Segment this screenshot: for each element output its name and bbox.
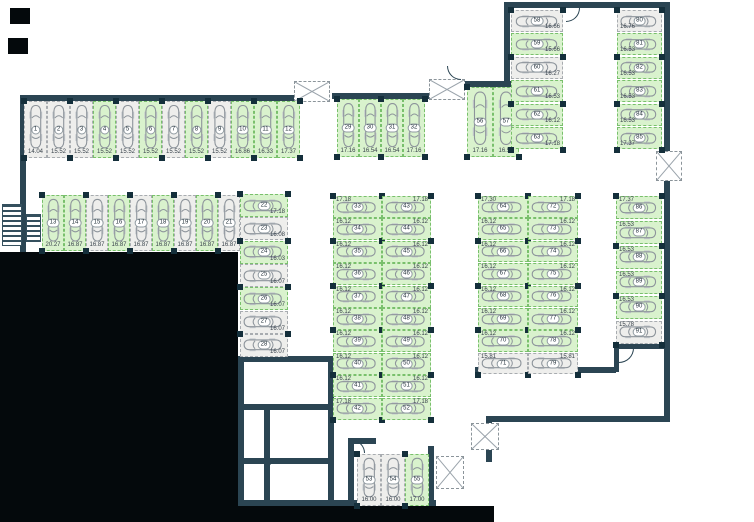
structural-column xyxy=(205,155,211,161)
space-number: 17 xyxy=(135,219,148,228)
space-area-label: 16.87 xyxy=(89,242,104,249)
space-number: 15 xyxy=(91,219,104,228)
parking-space-46[interactable]: 4616.12 xyxy=(382,263,431,285)
space-area-label: 17.18 xyxy=(336,399,351,406)
structural-column xyxy=(464,154,470,160)
space-area-label: 16.12 xyxy=(413,331,428,338)
parking-space-67[interactable]: 6716.12 xyxy=(478,263,528,285)
parking-space-29[interactable]: 2917.16 xyxy=(337,99,359,157)
space-number: 53 xyxy=(363,476,376,485)
parking-space-47[interactable]: 4716.12 xyxy=(382,286,431,308)
structural-column xyxy=(659,193,665,199)
structural-column xyxy=(508,7,514,13)
structural-column xyxy=(508,54,514,60)
space-area-label: 16.87 xyxy=(111,242,126,249)
space-number: 41 xyxy=(351,382,364,391)
structural-column xyxy=(378,154,384,160)
parking-space-17[interactable]: 1716.87 xyxy=(130,195,152,251)
structural-column xyxy=(330,417,336,423)
parking-space-3[interactable]: 315.52 xyxy=(70,101,93,158)
structural-column xyxy=(285,238,291,244)
space-number: 42 xyxy=(351,404,364,413)
space-number: 47 xyxy=(400,292,413,301)
parking-space-13[interactable]: 1320.27 xyxy=(42,195,64,251)
structural-column xyxy=(205,98,211,104)
parking-space-68[interactable]: 6816.12 xyxy=(478,286,528,308)
space-number: 60 xyxy=(531,63,544,72)
structural-column xyxy=(659,243,665,249)
structural-column xyxy=(428,327,434,333)
structural-column xyxy=(560,54,566,60)
parking-space-88[interactable]: 8816.53 xyxy=(616,246,662,269)
space-area-label: 16.54 xyxy=(362,148,377,155)
space-area-label: 15.52 xyxy=(51,149,66,156)
space-number: 49 xyxy=(400,337,413,346)
space-number: 90 xyxy=(633,303,646,312)
structural-column xyxy=(21,155,27,161)
space-number: 22 xyxy=(258,201,271,210)
space-number: 40 xyxy=(351,359,364,368)
structural-column xyxy=(237,238,243,244)
space-area-label: 16.03 xyxy=(270,256,285,263)
space-number: 54 xyxy=(387,476,400,485)
structural-column xyxy=(659,293,665,299)
structural-column xyxy=(475,372,481,378)
parking-space-35[interactable]: 3516.12 xyxy=(333,241,382,263)
parking-space-10[interactable]: 1016.86 xyxy=(231,101,254,158)
parking-space-12[interactable]: 1217.37 xyxy=(277,101,300,158)
space-area-label: 16.00 xyxy=(385,497,400,504)
parking-space-78[interactable]: 7816.12 xyxy=(528,330,578,352)
space-area-label: 17.18 xyxy=(270,209,285,216)
parking-space-20[interactable]: 2016.87 xyxy=(196,195,218,251)
space-area-label: 17.37 xyxy=(620,141,635,148)
space-area-label: 16.12 xyxy=(481,264,496,271)
space-number: 29 xyxy=(342,124,355,133)
space-area-label: 16.86 xyxy=(235,149,250,156)
parking-space-58[interactable]: 5816.66 xyxy=(511,10,563,32)
structural-column xyxy=(428,283,434,289)
structural-column xyxy=(659,54,665,60)
structural-column xyxy=(251,98,257,104)
space-area-label: 16.12 xyxy=(545,118,560,125)
parking-space-4[interactable]: 415.52 xyxy=(93,101,116,158)
space-number: 24 xyxy=(258,248,271,257)
parking-space-27[interactable]: 2716.07 xyxy=(240,311,288,334)
parking-space-82[interactable]: 8216.53 xyxy=(617,57,662,79)
structural-column xyxy=(113,98,119,104)
stairs-west xyxy=(2,204,22,246)
structural-column xyxy=(402,451,408,457)
parking-space-89[interactable]: 8916.53 xyxy=(616,271,662,294)
parking-space-76[interactable]: 7616.12 xyxy=(528,286,578,308)
parking-space-59[interactable]: 5915.66 xyxy=(511,33,563,55)
parking-space-34[interactable]: 3416.12 xyxy=(333,218,382,240)
space-number: 81 xyxy=(633,40,646,49)
space-area-label: 16.12 xyxy=(560,264,575,271)
parking-space-62[interactable]: 6216.12 xyxy=(511,104,563,126)
parking-space-44[interactable]: 4416.12 xyxy=(382,218,431,240)
space-number: 12 xyxy=(282,125,295,134)
space-area-label: 16.87 xyxy=(67,242,82,249)
space-area-label: 16.12 xyxy=(413,264,428,271)
space-number: 28 xyxy=(258,341,271,350)
space-number: 43 xyxy=(400,203,413,212)
space-number: 72 xyxy=(547,202,560,211)
space-number: 83 xyxy=(633,87,646,96)
space-number: 14 xyxy=(69,219,82,228)
space-area-label: 16.53 xyxy=(619,297,634,304)
space-area-label: 16.87 xyxy=(221,242,236,249)
parking-space-28[interactable]: 2816.07 xyxy=(240,334,288,357)
structural-column xyxy=(354,451,360,457)
structural-column xyxy=(330,372,336,378)
structural-column xyxy=(297,155,303,161)
parking-space-19[interactable]: 1916.87 xyxy=(174,195,196,251)
space-number: 38 xyxy=(351,315,364,324)
structural-column xyxy=(659,342,665,348)
parking-space-53[interactable]: 5316.00 xyxy=(357,454,381,506)
space-area-label: 16.00 xyxy=(361,497,376,504)
parking-space-2[interactable]: 215.52 xyxy=(47,101,70,158)
structural-column xyxy=(330,283,336,289)
structural-column xyxy=(215,248,221,254)
space-area-label: 16.07 xyxy=(270,302,285,309)
space-area-label: 16.12 xyxy=(481,219,496,226)
space-area-label: 16.53 xyxy=(620,71,635,78)
space-area-label: 17.00 xyxy=(409,497,424,504)
structural-column xyxy=(614,7,620,13)
door-arc-northeast-corridor xyxy=(566,8,580,22)
space-area-label: 16.12 xyxy=(413,242,428,249)
space-area-label: 16.12 xyxy=(336,309,351,316)
parking-space-43[interactable]: 4317.18 xyxy=(382,196,431,218)
parking-space-75[interactable]: 7516.12 xyxy=(528,263,578,285)
structural-column xyxy=(378,96,384,102)
space-number: 73 xyxy=(547,225,560,234)
space-number: 71 xyxy=(497,359,510,368)
space-area-label: 16.12 xyxy=(481,331,496,338)
structural-column xyxy=(614,54,620,60)
structural-column xyxy=(475,327,481,333)
parking-space-40[interactable]: 4016.12 xyxy=(333,353,382,375)
parking-space-26[interactable]: 2616.07 xyxy=(240,287,288,310)
space-number: 78 xyxy=(547,337,560,346)
structural-column xyxy=(575,372,581,378)
parking-space-30[interactable]: 3016.54 xyxy=(359,99,381,157)
structural-column xyxy=(475,283,481,289)
parking-space-85[interactable]: 8517.37 xyxy=(617,127,662,149)
parking-space-7[interactable]: 715.52 xyxy=(162,101,185,158)
space-area-label: 15.81 xyxy=(560,354,575,361)
parking-space-70[interactable]: 7016.12 xyxy=(478,330,528,352)
parking-space-71[interactable]: 7115.81 xyxy=(478,353,528,375)
parking-space-6[interactable]: 615.52 xyxy=(139,101,162,158)
space-area-label: 17.18 xyxy=(336,197,351,204)
parking-space-61[interactable]: 6116.53 xyxy=(511,80,563,102)
structural-column xyxy=(575,238,581,244)
parking-space-31[interactable]: 3116.54 xyxy=(381,99,403,157)
structural-column xyxy=(159,155,165,161)
structural-column xyxy=(297,98,303,104)
space-area-label: 16.87 xyxy=(155,242,170,249)
space-area-label: 16.53 xyxy=(620,47,635,54)
structural-column xyxy=(422,154,428,160)
parking-space-87[interactable]: 8716.53 xyxy=(616,221,662,244)
structural-column xyxy=(159,98,165,104)
structural-column xyxy=(428,372,434,378)
space-number: 68 xyxy=(497,292,510,301)
space-area-label: 16.12 xyxy=(336,331,351,338)
space-number: 31 xyxy=(386,124,399,133)
structural-column xyxy=(422,96,428,102)
parking-space-5[interactable]: 515.52 xyxy=(116,101,139,158)
space-number: 11 xyxy=(259,125,271,134)
structural-column xyxy=(428,193,434,199)
space-number: 75 xyxy=(547,269,560,278)
space-number: 63 xyxy=(531,134,544,143)
space-area-label: 15.52 xyxy=(74,149,89,156)
parking-space-42[interactable]: 4217.18 xyxy=(333,398,382,420)
parking-space-11[interactable]: 1116.33 xyxy=(254,101,277,158)
space-area-label: 16.12 xyxy=(413,376,428,383)
structural-column xyxy=(251,155,257,161)
space-area-label: 16.87 xyxy=(199,242,214,249)
parking-space-83[interactable]: 8316.53 xyxy=(617,80,662,102)
space-number: 74 xyxy=(547,247,560,256)
space-area-label: 16.12 xyxy=(336,354,351,361)
space-area-label: 16.12 xyxy=(481,287,496,294)
space-area-label: 16.12 xyxy=(560,331,575,338)
structural-column xyxy=(39,192,45,198)
structural-column xyxy=(614,147,620,153)
structural-column xyxy=(613,342,619,348)
space-area-label: 17.16 xyxy=(472,148,487,155)
structural-column xyxy=(39,248,45,254)
space-area-label: 16.12 xyxy=(560,309,575,316)
parking-space-74[interactable]: 7416.12 xyxy=(528,241,578,263)
structural-column xyxy=(508,147,514,153)
space-area-label: 17.30 xyxy=(481,197,496,204)
space-number: 16 xyxy=(113,219,126,228)
structural-column xyxy=(237,284,243,290)
space-number: 84 xyxy=(633,110,646,119)
space-area-label: 15.66 xyxy=(545,47,560,54)
parking-space-39[interactable]: 3916.12 xyxy=(333,330,382,352)
space-number: 52 xyxy=(400,404,413,413)
space-number: 64 xyxy=(497,202,510,211)
parking-space-77[interactable]: 7716.12 xyxy=(528,308,578,330)
parking-space-9[interactable]: 915.52 xyxy=(208,101,231,158)
structural-column xyxy=(215,192,221,198)
shaft-hatch-southeast xyxy=(471,423,499,450)
space-area-label: 16.12 xyxy=(336,287,351,294)
space-area-label: 17.18 xyxy=(545,141,560,148)
parking-space-41[interactable]: 4116.12 xyxy=(333,375,382,397)
structural-column xyxy=(334,154,340,160)
space-number: 35 xyxy=(351,247,364,256)
space-area-label: 16.12 xyxy=(413,354,428,361)
space-number: 13 xyxy=(47,219,60,228)
structural-column xyxy=(334,96,340,102)
parking-space-64[interactable]: 6417.30 xyxy=(478,196,528,218)
space-area-label: 16.12 xyxy=(481,309,496,316)
parking-space-72[interactable]: 7217.18 xyxy=(528,196,578,218)
space-area-label: 16.27 xyxy=(545,71,560,78)
space-number: 30 xyxy=(364,124,377,133)
space-area-label: 16.12 xyxy=(560,287,575,294)
shaft-hatch-south xyxy=(436,456,464,489)
space-number: 36 xyxy=(351,270,364,279)
exterior-block-a xyxy=(10,8,30,24)
parking-space-18[interactable]: 1816.87 xyxy=(152,195,174,251)
parking-space-79[interactable]: 7915.81 xyxy=(528,353,578,375)
structural-column xyxy=(171,248,177,254)
structural-column xyxy=(475,238,481,244)
space-number: 59 xyxy=(531,40,544,49)
structural-column xyxy=(613,193,619,199)
space-area-label: 16.33 xyxy=(258,149,273,156)
space-number: 80 xyxy=(633,17,646,26)
parking-space-36[interactable]: 3616.12 xyxy=(333,263,382,285)
structural-column xyxy=(237,191,243,197)
structural-column xyxy=(127,192,133,198)
space-area-label: 16.12 xyxy=(413,287,428,294)
structural-column xyxy=(613,243,619,249)
parking-space-32[interactable]: 3217.16 xyxy=(403,99,425,157)
space-number: 87 xyxy=(633,228,646,237)
parking-space-24[interactable]: 2416.03 xyxy=(240,241,288,264)
structural-column xyxy=(330,193,336,199)
parking-space-37[interactable]: 3716.12 xyxy=(333,286,382,308)
space-area-label: 17.37 xyxy=(281,149,296,156)
parking-space-56[interactable]: 5617.16 xyxy=(467,87,493,157)
parking-space-45[interactable]: 4516.12 xyxy=(382,241,431,263)
structural-column xyxy=(575,283,581,289)
space-area-label: 16.53 xyxy=(545,94,560,101)
space-number: 55 xyxy=(411,476,424,485)
parking-space-8[interactable]: 815.52 xyxy=(185,101,208,158)
parking-space-15[interactable]: 1516.87 xyxy=(86,195,108,251)
space-number: 32 xyxy=(408,124,421,133)
space-area-label: 17.37 xyxy=(619,197,634,204)
parking-space-14[interactable]: 1416.87 xyxy=(64,195,86,251)
space-area-label: 16.12 xyxy=(560,242,575,249)
space-area-label: 16.12 xyxy=(336,242,351,249)
parking-space-16[interactable]: 1616.87 xyxy=(108,195,130,251)
space-number: 89 xyxy=(633,278,646,287)
parking-space-52[interactable]: 5217.18 xyxy=(382,398,431,420)
space-area-label: 16.54 xyxy=(384,148,399,155)
space-area-label: 15.52 xyxy=(189,149,204,156)
space-number: 79 xyxy=(547,359,560,368)
space-area-label: 15.52 xyxy=(166,149,181,156)
structural-column xyxy=(614,101,620,107)
space-number: 50 xyxy=(400,359,413,368)
parking-space-33[interactable]: 3317.18 xyxy=(333,196,382,218)
structural-column xyxy=(67,98,73,104)
space-area-label: 16.07 xyxy=(270,279,285,286)
parking-space-25[interactable]: 2516.07 xyxy=(240,264,288,287)
structural-column xyxy=(560,101,566,107)
space-area-label: 16.12 xyxy=(336,264,351,271)
space-number: 69 xyxy=(497,314,510,323)
parking-space-49[interactable]: 4916.12 xyxy=(382,330,431,352)
parking-space-69[interactable]: 6916.12 xyxy=(478,308,528,330)
space-number: 77 xyxy=(547,314,560,323)
space-number: 44 xyxy=(400,225,413,234)
parking-space-63[interactable]: 6317.18 xyxy=(511,127,563,149)
space-number: 25 xyxy=(258,271,271,280)
space-area-label: 16.76 xyxy=(620,24,635,31)
space-area-label: 16.07 xyxy=(270,349,285,356)
structural-column xyxy=(113,155,119,161)
parking-space-51[interactable]: 5116.12 xyxy=(382,375,431,397)
wall-room-left xyxy=(238,356,244,506)
structural-column xyxy=(659,101,665,107)
parking-space-66[interactable]: 6616.12 xyxy=(478,241,528,263)
parking-space-50[interactable]: 5016.12 xyxy=(382,353,431,375)
parking-space-84[interactable]: 8416.53 xyxy=(617,104,662,126)
space-number: 27 xyxy=(258,318,271,327)
space-number: 33 xyxy=(351,203,364,212)
wall-east-outer-lower xyxy=(664,180,670,422)
parking-space-65[interactable]: 6516.12 xyxy=(478,218,528,240)
space-area-label: 16.66 xyxy=(545,24,560,31)
structural-column xyxy=(475,193,481,199)
parking-space-38[interactable]: 3816.12 xyxy=(333,308,382,330)
space-area-label: 14.04 xyxy=(28,149,43,156)
space-number: 86 xyxy=(633,203,646,212)
parking-space-91[interactable]: 9115.78 xyxy=(616,321,662,344)
space-number: 91 xyxy=(633,328,646,337)
parking-space-81[interactable]: 8116.53 xyxy=(617,33,662,55)
wall-room-a-mid xyxy=(240,404,328,410)
structural-column xyxy=(659,7,665,13)
parking-space-54[interactable]: 5416.00 xyxy=(381,454,405,506)
structural-column xyxy=(285,191,291,197)
parking-space-86[interactable]: 8617.37 xyxy=(616,196,662,219)
parking-space-23[interactable]: 2316.08 xyxy=(240,217,288,240)
exterior-void-south-strip xyxy=(238,506,494,522)
space-area-label: 17.16 xyxy=(406,148,421,155)
structural-column xyxy=(127,248,133,254)
wall-northeast-left xyxy=(504,2,510,98)
parking-space-22[interactable]: 2217.18 xyxy=(240,194,288,217)
parking-floor-plan: 114.04215.52315.52415.52515.52615.52715.… xyxy=(0,0,754,522)
structural-column xyxy=(402,503,408,509)
space-number: 65 xyxy=(497,225,510,234)
space-number: 18 xyxy=(157,219,170,228)
structural-column xyxy=(285,284,291,290)
exterior-block-b xyxy=(8,38,28,54)
space-area-label: 15.52 xyxy=(212,149,227,156)
parking-space-60[interactable]: 6016.27 xyxy=(511,57,563,79)
parking-space-90[interactable]: 9016.53 xyxy=(616,296,662,319)
parking-space-1[interactable]: 114.04 xyxy=(24,101,47,158)
parking-space-55[interactable]: 5517.00 xyxy=(405,454,429,506)
space-area-label: 16.12 xyxy=(413,309,428,316)
parking-space-73[interactable]: 7316.12 xyxy=(528,218,578,240)
space-number: 58 xyxy=(531,17,544,26)
structural-column xyxy=(508,101,514,107)
structural-column xyxy=(285,331,291,337)
space-number: 70 xyxy=(497,337,510,346)
parking-space-80[interactable]: 8016.76 xyxy=(617,10,662,32)
space-area-label: 16.53 xyxy=(620,94,635,101)
space-area-label: 16.53 xyxy=(619,222,634,229)
parking-space-48[interactable]: 4816.12 xyxy=(382,308,431,330)
